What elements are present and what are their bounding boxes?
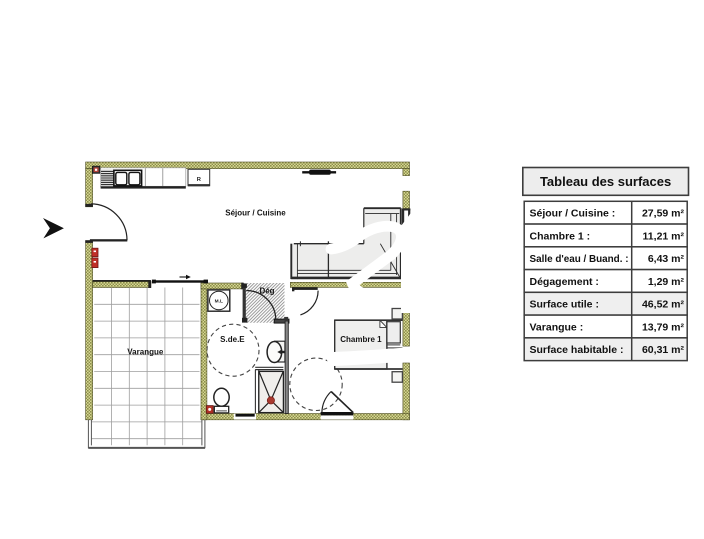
svg-text:1,29 m²: 1,29 m² <box>648 276 685 288</box>
svg-text:Varangue: Varangue <box>127 347 164 356</box>
svg-text:Dégagement :: Dégagement : <box>530 276 599 288</box>
svg-text:Varangue :: Varangue : <box>530 321 584 333</box>
svg-text:Surface habitable :: Surface habitable : <box>530 344 624 356</box>
svg-text:Tableau des surfaces: Tableau des surfaces <box>540 174 671 189</box>
svg-text:S.de.E: S.de.E <box>220 335 245 344</box>
svg-text:Chambre 1: Chambre 1 <box>340 335 382 344</box>
svg-text:Salle d'eau / Buand. :: Salle d'eau / Buand. : <box>530 253 629 265</box>
svg-text:13,79 m²: 13,79 m² <box>642 321 685 333</box>
svg-text:11,21 m²: 11,21 m² <box>643 230 685 242</box>
svg-text:27,59 m²: 27,59 m² <box>642 208 685 220</box>
svg-text:Chambre 1 :: Chambre 1 : <box>530 230 591 242</box>
svg-text:M.L: M.L <box>215 298 223 304</box>
svg-text:Dég: Dég <box>259 286 274 295</box>
svg-text:46,52 m²: 46,52 m² <box>642 299 685 311</box>
svg-text:Surface utile :: Surface utile : <box>530 299 599 311</box>
svg-text:60,31 m²: 60,31 m² <box>642 344 685 356</box>
svg-text:6,43 m²: 6,43 m² <box>648 253 685 265</box>
svg-text:Séjour / Cuisine :: Séjour / Cuisine : <box>530 208 616 220</box>
svg-text:Séjour / Cuisine: Séjour / Cuisine <box>225 208 286 217</box>
